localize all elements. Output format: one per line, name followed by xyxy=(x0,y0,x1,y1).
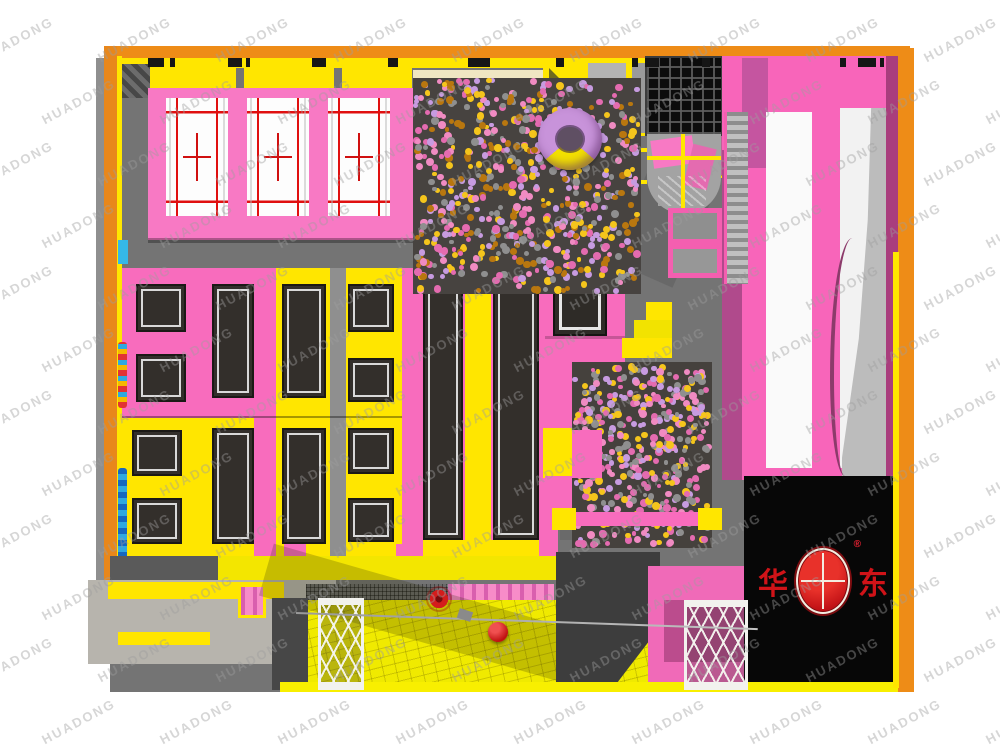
ball xyxy=(608,430,613,435)
ball xyxy=(480,194,487,201)
ball xyxy=(664,460,669,465)
donut-tube-slide xyxy=(538,108,602,170)
ball xyxy=(636,122,641,127)
ball xyxy=(470,263,478,271)
climb-grid-tower xyxy=(645,56,723,136)
ball xyxy=(603,226,610,233)
ball xyxy=(694,374,702,382)
tramp-bed-2 xyxy=(136,354,186,402)
steps-yellow-3 xyxy=(622,338,672,358)
render-canvas: 华 ® 东 HUADONGHUADONGHUADONGHUADONGHUADON… xyxy=(0,0,1000,750)
ball xyxy=(615,157,622,164)
ball xyxy=(667,426,674,433)
ball xyxy=(641,530,647,536)
ball xyxy=(453,227,459,233)
ball xyxy=(650,441,656,447)
watermark-text: HUADONG xyxy=(275,0,354,3)
ball xyxy=(677,529,684,536)
ball xyxy=(502,120,508,126)
ball xyxy=(623,454,631,462)
ball xyxy=(498,166,504,172)
ball xyxy=(526,206,532,212)
watermark-text: HUADONG xyxy=(0,262,56,313)
ball xyxy=(686,429,692,435)
ball xyxy=(454,195,459,200)
pink-pit-upper xyxy=(668,208,722,244)
ball xyxy=(439,92,444,97)
ball xyxy=(541,198,546,203)
ball xyxy=(468,186,473,191)
mid-platform-seam xyxy=(545,336,625,339)
ball xyxy=(490,235,496,241)
ball xyxy=(463,204,470,211)
ball xyxy=(650,540,657,547)
ball xyxy=(563,263,568,268)
ball xyxy=(635,467,641,473)
watermark-text: HUADONG xyxy=(921,634,1000,685)
ball xyxy=(613,288,619,294)
ball xyxy=(686,482,692,488)
ball xyxy=(624,138,629,143)
ball xyxy=(638,423,643,428)
ball xyxy=(543,216,550,223)
ball xyxy=(479,216,484,221)
ball xyxy=(665,397,670,402)
ball xyxy=(607,252,612,257)
ball xyxy=(608,436,614,442)
ball xyxy=(572,377,578,383)
ball xyxy=(693,423,698,428)
ball xyxy=(578,479,583,484)
ball xyxy=(566,86,573,93)
ball xyxy=(491,127,498,134)
ball xyxy=(518,183,524,189)
ball xyxy=(492,225,499,232)
ball xyxy=(448,188,454,194)
ball xyxy=(608,234,616,242)
ball xyxy=(584,183,592,191)
ball xyxy=(573,202,578,207)
watermark-text: HUADONG xyxy=(983,696,1000,747)
ball xyxy=(615,84,622,91)
ball xyxy=(501,138,506,143)
watermark-text: HUADONG xyxy=(921,14,1000,65)
ball xyxy=(609,174,615,180)
ball xyxy=(485,85,490,90)
ballpit-main xyxy=(413,78,641,294)
ball xyxy=(420,258,428,266)
ball xyxy=(635,436,641,442)
rail-tick xyxy=(645,58,659,67)
ball xyxy=(543,287,548,292)
ball xyxy=(519,210,526,217)
ball xyxy=(594,196,601,203)
ball xyxy=(449,240,454,245)
ball xyxy=(611,210,619,218)
ball xyxy=(693,484,700,491)
ball xyxy=(567,101,573,107)
ball xyxy=(414,268,422,276)
ball xyxy=(431,110,437,116)
ball xyxy=(420,223,427,230)
ball xyxy=(477,112,485,120)
ball xyxy=(493,183,500,190)
ball xyxy=(424,239,429,244)
ball xyxy=(440,257,447,264)
ball xyxy=(530,78,537,85)
ball xyxy=(437,79,442,84)
ball xyxy=(656,540,661,545)
climb-holds-top xyxy=(118,240,128,264)
ball xyxy=(429,127,435,133)
ball xyxy=(515,243,520,248)
ball xyxy=(632,531,637,536)
ball xyxy=(473,255,479,261)
court-seam xyxy=(122,416,402,418)
ball xyxy=(692,410,699,417)
ball xyxy=(621,374,628,381)
ball xyxy=(697,434,704,441)
ball xyxy=(460,259,465,264)
ball xyxy=(599,420,605,426)
watermark-text: HUADONG xyxy=(629,696,708,747)
ball xyxy=(573,178,581,186)
ball xyxy=(474,91,480,97)
ball xyxy=(474,207,480,213)
ball xyxy=(595,184,601,190)
logo-oval: ® xyxy=(796,548,850,614)
ball xyxy=(513,233,520,240)
ball xyxy=(667,539,674,546)
ball xyxy=(545,81,552,88)
ball xyxy=(691,436,696,441)
ball xyxy=(437,98,444,105)
ball xyxy=(565,197,570,202)
watermark-text: HUADONG xyxy=(393,0,472,3)
ball xyxy=(679,421,686,428)
ball xyxy=(585,479,592,486)
ball xyxy=(440,189,447,196)
ball xyxy=(602,243,609,250)
ball xyxy=(535,172,540,177)
lane-bottom-yellow xyxy=(423,540,539,556)
ball xyxy=(634,472,641,479)
ball xyxy=(568,261,576,269)
ball xyxy=(582,420,587,425)
ball xyxy=(609,460,614,465)
tramp-bed-9 xyxy=(212,428,254,544)
pit2-corner-pink xyxy=(572,430,602,478)
ball xyxy=(589,258,595,264)
watermark-text: HUADONG xyxy=(511,696,590,747)
ball xyxy=(458,81,463,86)
corridor-bottom-strip xyxy=(280,682,906,692)
ball xyxy=(449,81,454,86)
court-sep-pink-bottom xyxy=(254,418,276,558)
ball xyxy=(607,400,615,408)
ball xyxy=(624,169,631,176)
ball xyxy=(580,230,587,237)
beam-cap-right xyxy=(698,508,722,530)
ball xyxy=(516,283,522,289)
ball xyxy=(662,474,668,480)
ball xyxy=(619,111,625,117)
lane-right xyxy=(493,272,539,540)
ball xyxy=(577,257,582,262)
ball xyxy=(486,78,491,83)
spider-panel-2 xyxy=(247,98,309,216)
ball xyxy=(516,257,523,264)
ball xyxy=(428,219,433,224)
ball xyxy=(589,105,595,111)
ball xyxy=(559,223,566,230)
ball xyxy=(642,384,647,389)
ball xyxy=(556,82,564,90)
ball xyxy=(549,188,554,193)
ball xyxy=(621,395,628,402)
ball xyxy=(489,211,494,216)
ball xyxy=(673,374,679,380)
ball xyxy=(437,174,443,180)
ball xyxy=(416,163,423,170)
ball xyxy=(648,493,655,500)
ball xyxy=(455,201,461,207)
ball xyxy=(562,176,568,182)
tramp-bed-10 xyxy=(282,428,326,544)
ball xyxy=(441,180,447,186)
ball xyxy=(636,444,642,450)
logo-char-left: 华 xyxy=(758,559,788,603)
ball xyxy=(674,448,679,453)
ball xyxy=(458,122,464,128)
ball xyxy=(631,179,636,184)
tramp-bed-12 xyxy=(348,498,394,542)
ball xyxy=(587,85,593,91)
ball xyxy=(582,226,587,231)
ball xyxy=(666,409,672,415)
ball xyxy=(633,250,641,258)
ball xyxy=(573,190,579,196)
watermark-text: HUADONG xyxy=(0,386,56,437)
ball xyxy=(494,144,502,152)
ball xyxy=(644,455,650,461)
ball xyxy=(462,192,468,198)
ball xyxy=(519,236,527,244)
ball xyxy=(579,540,587,548)
ball xyxy=(432,164,439,171)
arena-bottom-wall-dark xyxy=(110,556,218,580)
entrance-bench-yellow-2 xyxy=(118,632,210,645)
ball xyxy=(508,189,515,196)
ball xyxy=(604,180,611,187)
ball xyxy=(415,144,422,151)
ball xyxy=(682,448,687,453)
huadong-logo: 华 ® 东 xyxy=(744,538,902,624)
ball xyxy=(474,230,480,236)
floor-decal-flower xyxy=(428,588,450,610)
ball xyxy=(447,137,455,145)
ball xyxy=(432,187,437,192)
ball xyxy=(612,195,618,201)
ball xyxy=(505,140,512,147)
ball xyxy=(673,494,681,502)
watermark-text: HUADONG xyxy=(921,386,1000,437)
ball xyxy=(518,275,525,282)
ball xyxy=(476,161,483,168)
truss-tower-left xyxy=(318,598,364,690)
ball xyxy=(485,100,491,106)
wall-pad-yellow-2 xyxy=(244,66,334,90)
ball xyxy=(538,105,545,112)
ball xyxy=(481,143,488,150)
logo-char-right: 东 xyxy=(858,559,888,603)
ball xyxy=(413,103,418,108)
watermark-text: HUADONG xyxy=(157,0,236,3)
ball xyxy=(633,379,640,386)
ball xyxy=(447,264,452,269)
ball xyxy=(529,130,537,138)
ball xyxy=(599,530,607,538)
ball xyxy=(428,100,433,105)
ball xyxy=(612,392,618,398)
ball xyxy=(587,504,595,512)
ball xyxy=(482,152,489,159)
ball xyxy=(669,480,675,486)
ball xyxy=(534,244,541,251)
logo-registered-mark: ® xyxy=(854,539,861,550)
ball xyxy=(426,92,431,97)
ball xyxy=(600,266,608,274)
ball xyxy=(590,541,597,548)
ball xyxy=(528,216,535,223)
ball xyxy=(605,541,610,546)
tramp-bed-8 xyxy=(132,498,182,544)
watermark-text: HUADONG xyxy=(157,696,236,747)
ball xyxy=(581,281,587,287)
ball xyxy=(622,222,629,229)
watermark-text: HUADONG xyxy=(983,448,1000,499)
ball xyxy=(428,274,434,280)
ball xyxy=(599,272,604,277)
ball xyxy=(415,127,422,134)
watermark-text: HUADONG xyxy=(0,510,56,561)
ball xyxy=(590,493,598,501)
ball xyxy=(618,385,623,390)
truss-tower-right xyxy=(684,600,748,690)
ball xyxy=(414,99,419,104)
watermark-text: HUADONG xyxy=(921,262,1000,313)
tramp-bed-7 xyxy=(132,430,182,476)
ball xyxy=(582,383,588,389)
ball xyxy=(609,449,614,454)
ball xyxy=(478,250,485,257)
rail-tick xyxy=(556,58,564,67)
ball xyxy=(531,147,537,153)
ball xyxy=(465,156,471,162)
ball xyxy=(502,246,510,254)
ball xyxy=(581,248,588,255)
ball xyxy=(634,536,641,543)
ball xyxy=(631,421,638,428)
ball xyxy=(698,404,705,411)
rail-tick xyxy=(632,58,638,67)
ball xyxy=(464,104,469,109)
ball xyxy=(620,473,628,481)
ball xyxy=(599,489,606,496)
ball xyxy=(606,455,612,461)
ball xyxy=(553,246,560,253)
steps-yellow-1 xyxy=(646,302,672,320)
ball xyxy=(607,393,612,398)
ball xyxy=(566,185,572,191)
watermark-text: HUADONG xyxy=(865,696,944,747)
ball xyxy=(468,178,476,186)
ball xyxy=(665,491,672,498)
ball xyxy=(616,138,621,143)
ball xyxy=(458,270,466,278)
ball xyxy=(636,453,642,459)
ball xyxy=(587,397,592,402)
court-sep-pink-top xyxy=(258,268,276,418)
ball xyxy=(628,102,633,107)
ball xyxy=(624,238,631,245)
ball xyxy=(500,103,505,108)
capsule-yline-v xyxy=(681,134,685,214)
watermark-text: HUADONG xyxy=(511,0,590,3)
left-wall-orange xyxy=(104,46,117,608)
watermark-text: HUADONG xyxy=(39,0,118,3)
ball xyxy=(604,146,611,153)
ball xyxy=(440,274,446,280)
ball xyxy=(581,398,589,406)
lane-center-yellow xyxy=(465,272,491,556)
ball xyxy=(586,409,593,416)
ball xyxy=(567,232,573,238)
ball xyxy=(496,251,501,256)
ball xyxy=(539,98,544,103)
ball xyxy=(524,251,530,257)
spider-panel-1 xyxy=(166,98,228,216)
ball xyxy=(641,432,647,438)
ball xyxy=(614,411,621,418)
watermark-text: HUADONG xyxy=(0,138,56,189)
rail-tick xyxy=(246,58,250,67)
ball xyxy=(627,470,633,476)
lane-left xyxy=(423,272,463,540)
ball xyxy=(570,239,575,244)
ball xyxy=(513,143,520,150)
ball xyxy=(571,221,578,228)
rail-tick xyxy=(468,58,490,67)
ball xyxy=(641,367,648,374)
ball xyxy=(434,231,440,237)
watermark-text: HUADONG xyxy=(0,14,56,65)
ball xyxy=(603,505,610,512)
ball xyxy=(619,131,627,139)
ball xyxy=(481,271,487,277)
ball xyxy=(449,119,454,124)
rail-tick xyxy=(170,58,175,67)
ball xyxy=(551,99,557,105)
watermark-text: HUADONG xyxy=(921,138,1000,189)
wall-pad-yellow-3 xyxy=(342,66,412,90)
watermark-text: HUADONG xyxy=(983,572,1000,623)
ball xyxy=(630,489,637,496)
ball xyxy=(544,240,551,247)
ball xyxy=(629,116,636,123)
ball xyxy=(468,164,473,169)
ball xyxy=(517,176,524,183)
